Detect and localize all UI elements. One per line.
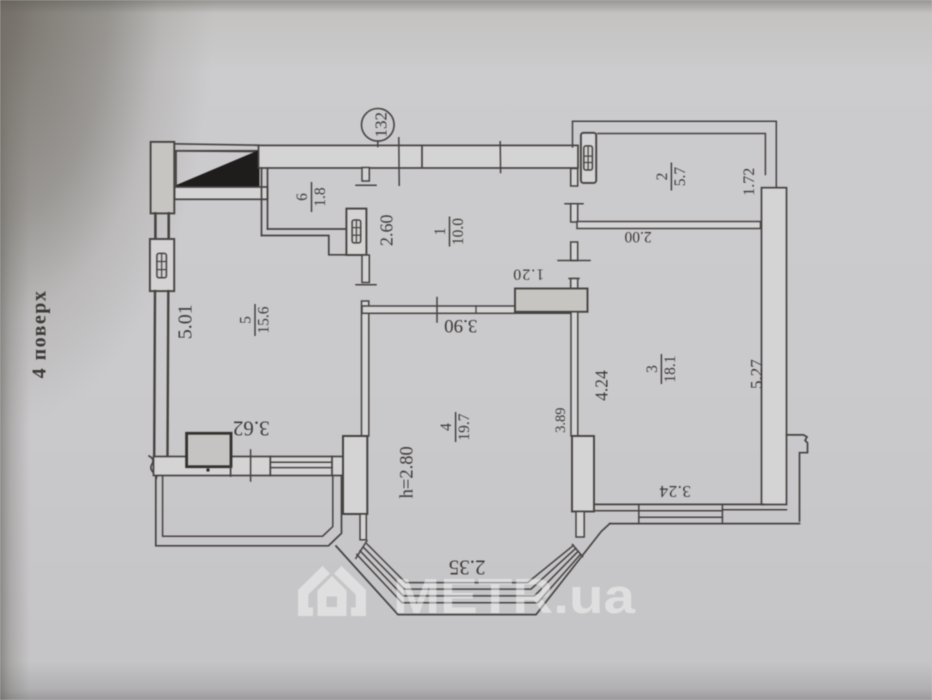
svg-text:3.90: 3.90	[444, 315, 477, 336]
svg-text:132: 132	[372, 112, 391, 138]
svg-text:19.7: 19.7	[456, 413, 473, 440]
svg-text:3.24: 3.24	[659, 482, 691, 501]
svg-text:2.60: 2.60	[377, 214, 397, 246]
svg-text:6: 6	[294, 193, 311, 201]
svg-text:МЕТR.ua: МЕТR.ua	[393, 570, 636, 624]
svg-text:4.24: 4.24	[592, 370, 612, 401]
svg-text:1.72: 1.72	[741, 168, 758, 196]
svg-text:2.00: 2.00	[624, 228, 651, 245]
svg-text:5.27: 5.27	[747, 359, 766, 389]
svg-text:3: 3	[644, 365, 661, 373]
svg-text:15.6: 15.6	[256, 306, 273, 333]
svg-text:5.7: 5.7	[672, 167, 689, 187]
svg-text:h=2.80: h=2.80	[398, 446, 418, 498]
svg-text:1: 1	[432, 228, 449, 236]
svg-text:5.01: 5.01	[174, 304, 196, 339]
svg-text:4 поверх: 4 поверх	[29, 290, 51, 379]
svg-text:1.20: 1.20	[512, 265, 544, 282]
svg-text:3.89: 3.89	[553, 408, 569, 433]
svg-text:3.62: 3.62	[233, 416, 270, 440]
svg-text:10.0: 10.0	[450, 218, 467, 245]
svg-text:4: 4	[438, 423, 455, 431]
svg-text:5: 5	[238, 316, 255, 324]
svg-text:2: 2	[654, 173, 671, 181]
svg-text:18.1: 18.1	[662, 355, 679, 382]
svg-text:1.8: 1.8	[312, 187, 329, 207]
